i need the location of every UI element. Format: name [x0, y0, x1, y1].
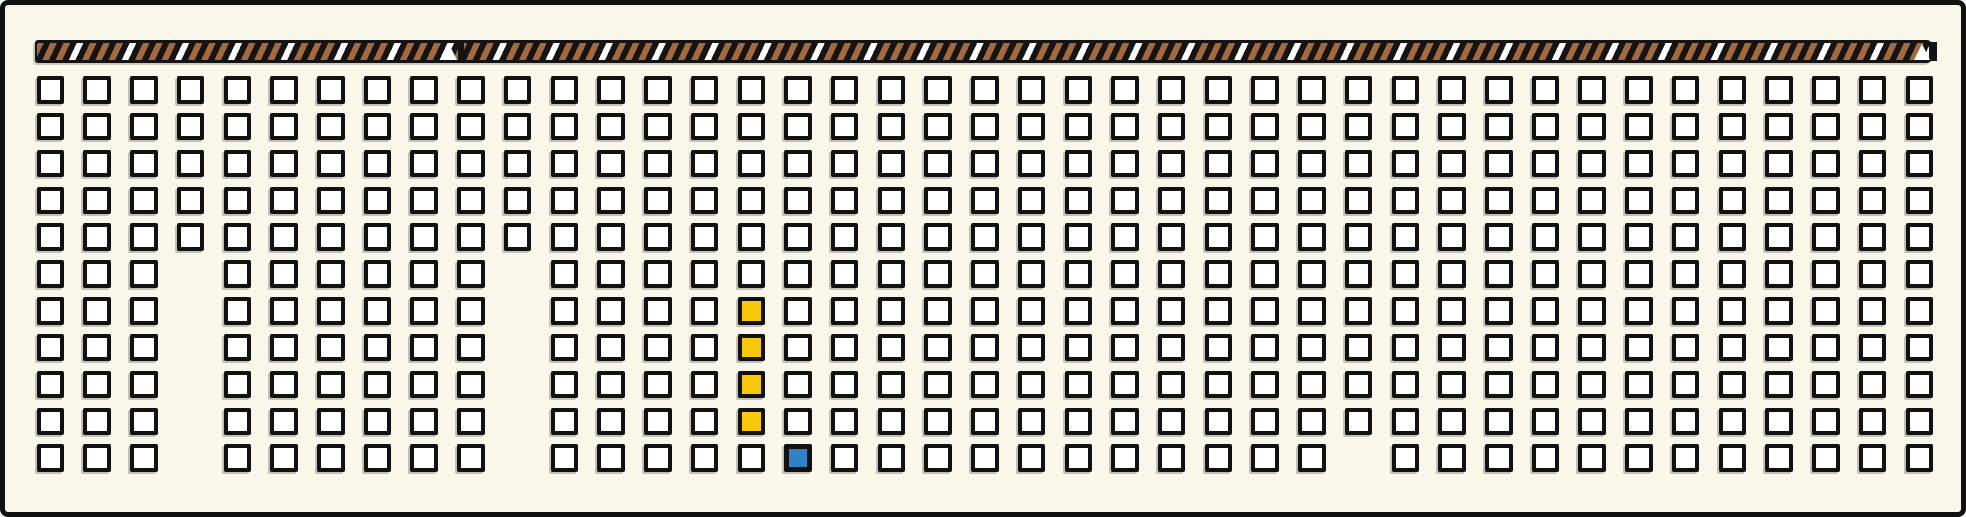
grid-cell[interactable]	[1345, 408, 1373, 436]
grid-cell[interactable]	[410, 223, 438, 251]
grid-cell[interactable]	[317, 408, 345, 436]
grid-cell[interactable]	[1485, 76, 1513, 104]
grid-cell[interactable]	[1719, 408, 1747, 436]
grid-cell[interactable]	[270, 408, 298, 436]
grid-cell-selected[interactable]	[784, 444, 812, 472]
grid-cell[interactable]	[1578, 260, 1606, 288]
grid-cell[interactable]	[1578, 113, 1606, 141]
grid-cell[interactable]	[1158, 187, 1186, 215]
grid-cell[interactable]	[878, 150, 906, 178]
grid-cell[interactable]	[1859, 223, 1887, 251]
grid-cell[interactable]	[1158, 297, 1186, 325]
grid-cell[interactable]	[551, 297, 579, 325]
grid-cell[interactable]	[644, 444, 672, 472]
grid-cell[interactable]	[924, 260, 952, 288]
grid-cell[interactable]	[644, 113, 672, 141]
grid-cell[interactable]	[130, 76, 158, 104]
grid-cell[interactable]	[1298, 371, 1326, 399]
grid-cell[interactable]	[1532, 408, 1560, 436]
grid-cell[interactable]	[878, 260, 906, 288]
grid-cell[interactable]	[1625, 150, 1653, 178]
grid-cell[interactable]	[831, 334, 859, 362]
grid-cell[interactable]	[1065, 297, 1093, 325]
grid-cell[interactable]	[457, 223, 485, 251]
grid-cell[interactable]	[551, 371, 579, 399]
grid-cell[interactable]	[177, 113, 205, 141]
grid-cell[interactable]	[924, 76, 952, 104]
grid-cell[interactable]	[1205, 76, 1233, 104]
grid-cell[interactable]	[83, 371, 111, 399]
grid-cell[interactable]	[1065, 223, 1093, 251]
grid-cell[interactable]	[37, 408, 65, 436]
grid-cell[interactable]	[177, 150, 205, 178]
grid-cell[interactable]	[1765, 371, 1793, 399]
grid-cell[interactable]	[364, 444, 392, 472]
grid-cell[interactable]	[924, 334, 952, 362]
grid-cell[interactable]	[1018, 297, 1046, 325]
grid-cell[interactable]	[738, 150, 766, 178]
grid-cell[interactable]	[1251, 150, 1279, 178]
grid-cell[interactable]	[1018, 408, 1046, 436]
grid-cell[interactable]	[1719, 371, 1747, 399]
grid-cell[interactable]	[1812, 113, 1840, 141]
grid-cell[interactable]	[1018, 260, 1046, 288]
grid-cell[interactable]	[1392, 187, 1420, 215]
grid-cell[interactable]	[1158, 334, 1186, 362]
grid-cell[interactable]	[784, 76, 812, 104]
grid-cell[interactable]	[971, 334, 999, 362]
grid-cell[interactable]	[457, 187, 485, 215]
grid-cell[interactable]	[1532, 297, 1560, 325]
grid-cell[interactable]	[457, 371, 485, 399]
grid-cell[interactable]	[83, 297, 111, 325]
grid-cell[interactable]	[1298, 260, 1326, 288]
grid-cell[interactable]	[1018, 150, 1046, 178]
grid-cell[interactable]	[1018, 334, 1046, 362]
grid-cell[interactable]	[37, 113, 65, 141]
grid-cell[interactable]	[317, 444, 345, 472]
grid-cell[interactable]	[1251, 76, 1279, 104]
grid-cell[interactable]	[971, 297, 999, 325]
grid-cell[interactable]	[1205, 113, 1233, 141]
grid-cell[interactable]	[1578, 150, 1606, 178]
grid-cell[interactable]	[924, 223, 952, 251]
grid-cell[interactable]	[130, 150, 158, 178]
grid-cell[interactable]	[1485, 223, 1513, 251]
grid-cell[interactable]	[971, 371, 999, 399]
grid-cell[interactable]	[410, 408, 438, 436]
grid-cell[interactable]	[1111, 150, 1139, 178]
grid-cell[interactable]	[691, 113, 719, 141]
grid-cell[interactable]	[1906, 76, 1934, 104]
grid-cell[interactable]	[1578, 334, 1606, 362]
grid-cell[interactable]	[317, 113, 345, 141]
grid-cell[interactable]	[597, 371, 625, 399]
grid-cell[interactable]	[1625, 334, 1653, 362]
grid-cell[interactable]	[1438, 371, 1466, 399]
grid-cell[interactable]	[270, 371, 298, 399]
grid-cell[interactable]	[1065, 76, 1093, 104]
grid-cell[interactable]	[317, 334, 345, 362]
grid-cell[interactable]	[1392, 113, 1420, 141]
grid-cell[interactable]	[691, 223, 719, 251]
grid-cell[interactable]	[1205, 408, 1233, 436]
grid-cell[interactable]	[738, 223, 766, 251]
grid-cell[interactable]	[691, 371, 719, 399]
grid-cell[interactable]	[878, 187, 906, 215]
grid-cell[interactable]	[364, 334, 392, 362]
grid-cell[interactable]	[878, 408, 906, 436]
grid-cell-highlighted[interactable]	[738, 297, 766, 325]
grid-cell[interactable]	[691, 408, 719, 436]
grid-cell[interactable]	[1485, 444, 1513, 472]
grid-cell[interactable]	[224, 260, 252, 288]
grid-cell[interactable]	[551, 76, 579, 104]
grid-cell[interactable]	[1345, 260, 1373, 288]
grid-cell[interactable]	[1906, 150, 1934, 178]
grid-cell[interactable]	[1438, 150, 1466, 178]
grid-cell[interactable]	[1859, 297, 1887, 325]
grid-cell[interactable]	[1906, 408, 1934, 436]
grid-cell[interactable]	[1812, 76, 1840, 104]
grid-cell[interactable]	[1812, 408, 1840, 436]
grid-cell[interactable]	[1345, 150, 1373, 178]
grid-cell[interactable]	[924, 444, 952, 472]
grid-cell[interactable]	[1298, 223, 1326, 251]
grid-cell[interactable]	[551, 223, 579, 251]
grid-cell[interactable]	[597, 260, 625, 288]
grid-cell[interactable]	[1065, 260, 1093, 288]
grid-cell[interactable]	[1392, 223, 1420, 251]
grid-cell[interactable]	[457, 260, 485, 288]
grid-cell[interactable]	[597, 223, 625, 251]
grid-cell[interactable]	[644, 187, 672, 215]
grid-cell[interactable]	[1111, 260, 1139, 288]
grid-cell[interactable]	[1859, 150, 1887, 178]
grid-cell[interactable]	[1018, 444, 1046, 472]
grid-cell[interactable]	[878, 444, 906, 472]
grid-cell[interactable]	[130, 223, 158, 251]
grid-cell[interactable]	[1532, 444, 1560, 472]
grid-cell[interactable]	[1345, 371, 1373, 399]
grid-cell[interactable]	[831, 371, 859, 399]
grid-cell[interactable]	[1298, 113, 1326, 141]
grid-cell[interactable]	[1859, 334, 1887, 362]
grid-cell[interactable]	[1298, 408, 1326, 436]
grid-cell[interactable]	[83, 187, 111, 215]
grid-cell[interactable]	[317, 223, 345, 251]
grid-cell[interactable]	[1765, 187, 1793, 215]
grid-cell[interactable]	[644, 260, 672, 288]
grid-cell[interactable]	[1251, 371, 1279, 399]
grid-cell[interactable]	[224, 408, 252, 436]
grid-cell[interactable]	[831, 297, 859, 325]
grid-cell[interactable]	[597, 297, 625, 325]
grid-cell[interactable]	[1065, 408, 1093, 436]
grid-cell[interactable]	[1485, 408, 1513, 436]
grid-cell[interactable]	[224, 223, 252, 251]
grid-cell[interactable]	[1625, 223, 1653, 251]
grid-cell[interactable]	[1672, 334, 1700, 362]
grid-cell[interactable]	[37, 76, 65, 104]
grid-cell[interactable]	[644, 150, 672, 178]
grid-cell[interactable]	[1719, 297, 1747, 325]
grid-cell[interactable]	[644, 223, 672, 251]
grid-cell[interactable]	[597, 150, 625, 178]
grid-cell[interactable]	[1906, 223, 1934, 251]
grid-cell[interactable]	[1111, 297, 1139, 325]
grid-cell[interactable]	[1532, 150, 1560, 178]
grid-cell[interactable]	[1625, 371, 1653, 399]
grid-cell[interactable]	[1625, 408, 1653, 436]
grid-cell[interactable]	[1906, 260, 1934, 288]
grid-cell[interactable]	[551, 187, 579, 215]
grid-cell[interactable]	[1485, 334, 1513, 362]
grid-cell[interactable]	[504, 76, 532, 104]
grid-cell[interactable]	[1625, 444, 1653, 472]
grid-cell[interactable]	[551, 113, 579, 141]
grid-cell[interactable]	[1578, 187, 1606, 215]
grid-cell[interactable]	[1018, 223, 1046, 251]
grid-cell[interactable]	[1392, 260, 1420, 288]
grid-cell[interactable]	[457, 76, 485, 104]
grid-cell[interactable]	[1906, 187, 1934, 215]
grid-cell[interactable]	[1345, 187, 1373, 215]
grid-cell[interactable]	[37, 444, 65, 472]
grid-cell[interactable]	[1438, 113, 1466, 141]
grid-cell[interactable]	[1812, 187, 1840, 215]
grid-cell[interactable]	[1672, 260, 1700, 288]
grid-cell[interactable]	[1765, 408, 1793, 436]
grid-cell[interactable]	[1345, 297, 1373, 325]
grid-cell[interactable]	[364, 408, 392, 436]
grid-cell[interactable]	[1765, 150, 1793, 178]
grid-cell[interactable]	[1065, 334, 1093, 362]
grid-cell[interactable]	[1438, 223, 1466, 251]
grid-cell[interactable]	[1906, 297, 1934, 325]
grid-cell[interactable]	[831, 150, 859, 178]
grid-cell[interactable]	[457, 444, 485, 472]
grid-cell[interactable]	[1065, 444, 1093, 472]
grid-cell[interactable]	[691, 297, 719, 325]
grid-cell[interactable]	[738, 76, 766, 104]
grid-cell[interactable]	[784, 223, 812, 251]
grid-cell[interactable]	[597, 187, 625, 215]
grid-cell[interactable]	[1251, 187, 1279, 215]
grid-cell-highlighted[interactable]	[738, 334, 766, 362]
grid-cell[interactable]	[738, 444, 766, 472]
grid-cell[interactable]	[1578, 444, 1606, 472]
grid-cell[interactable]	[317, 150, 345, 178]
grid-cell[interactable]	[177, 76, 205, 104]
grid-cell[interactable]	[878, 76, 906, 104]
grid-cell[interactable]	[831, 187, 859, 215]
grid-cell[interactable]	[410, 444, 438, 472]
grid-cell[interactable]	[130, 444, 158, 472]
grid-cell[interactable]	[1625, 260, 1653, 288]
grid-cell[interactable]	[364, 150, 392, 178]
grid-cell[interactable]	[971, 408, 999, 436]
grid-cell[interactable]	[1392, 297, 1420, 325]
grid-cell[interactable]	[878, 371, 906, 399]
grid-cell[interactable]	[1765, 76, 1793, 104]
grid-cell[interactable]	[1532, 223, 1560, 251]
grid-cell[interactable]	[177, 187, 205, 215]
grid-cell[interactable]	[1065, 187, 1093, 215]
grid-cell[interactable]	[410, 76, 438, 104]
grid-cell[interactable]	[1111, 113, 1139, 141]
grid-cell[interactable]	[831, 408, 859, 436]
grid-cell[interactable]	[130, 187, 158, 215]
grid-cell[interactable]	[37, 371, 65, 399]
grid-cell[interactable]	[1438, 444, 1466, 472]
grid-cell[interactable]	[1719, 150, 1747, 178]
grid-cell[interactable]	[784, 260, 812, 288]
grid-cell[interactable]	[831, 113, 859, 141]
grid-cell[interactable]	[270, 187, 298, 215]
grid-cell[interactable]	[1018, 187, 1046, 215]
grid-cell[interactable]	[224, 76, 252, 104]
grid-cell[interactable]	[1392, 76, 1420, 104]
grid-cell[interactable]	[644, 371, 672, 399]
grid-cell[interactable]	[1158, 223, 1186, 251]
grid-cell[interactable]	[1625, 297, 1653, 325]
grid-cell[interactable]	[1672, 113, 1700, 141]
grid-cell[interactable]	[410, 113, 438, 141]
grid-cell[interactable]	[1672, 371, 1700, 399]
grid-cell[interactable]	[410, 371, 438, 399]
grid-cell[interactable]	[1812, 223, 1840, 251]
grid-cell[interactable]	[37, 334, 65, 362]
grid-cell[interactable]	[1485, 297, 1513, 325]
grid-cell[interactable]	[317, 371, 345, 399]
grid-cell[interactable]	[691, 334, 719, 362]
grid-cell[interactable]	[364, 260, 392, 288]
grid-cell[interactable]	[270, 444, 298, 472]
grid-cell[interactable]	[83, 76, 111, 104]
grid-cell[interactable]	[644, 76, 672, 104]
grid-cell[interactable]	[1345, 76, 1373, 104]
grid-cell[interactable]	[1251, 334, 1279, 362]
grid-cell[interactable]	[270, 223, 298, 251]
grid-cell[interactable]	[410, 334, 438, 362]
grid-cell[interactable]	[924, 150, 952, 178]
grid-cell[interactable]	[504, 113, 532, 141]
grid-cell[interactable]	[364, 223, 392, 251]
grid-cell[interactable]	[1392, 371, 1420, 399]
grid-cell[interactable]	[1532, 260, 1560, 288]
grid-cell[interactable]	[1485, 113, 1513, 141]
grid-cell[interactable]	[1438, 187, 1466, 215]
grid-cell[interactable]	[1251, 444, 1279, 472]
grid-cell[interactable]	[1205, 150, 1233, 178]
grid-cell[interactable]	[83, 260, 111, 288]
grid-cell[interactable]	[1485, 187, 1513, 215]
grid-cell[interactable]	[691, 444, 719, 472]
grid-cell[interactable]	[551, 408, 579, 436]
grid-cell[interactable]	[1392, 408, 1420, 436]
grid-cell[interactable]	[364, 371, 392, 399]
grid-cell[interactable]	[644, 408, 672, 436]
grid-cell[interactable]	[1065, 371, 1093, 399]
grid-cell[interactable]	[1485, 260, 1513, 288]
grid-cell[interactable]	[1859, 76, 1887, 104]
grid-cell[interactable]	[1251, 113, 1279, 141]
grid-cell[interactable]	[83, 150, 111, 178]
grid-cell[interactable]	[1205, 223, 1233, 251]
grid-cell[interactable]	[37, 150, 65, 178]
grid-cell[interactable]	[457, 408, 485, 436]
grid-cell[interactable]	[317, 260, 345, 288]
grid-cell[interactable]	[364, 187, 392, 215]
grid-cell[interactable]	[1018, 76, 1046, 104]
grid-cell[interactable]	[270, 334, 298, 362]
grid-cell[interactable]	[784, 334, 812, 362]
grid-cell[interactable]	[1251, 408, 1279, 436]
grid-cell[interactable]	[1111, 223, 1139, 251]
grid-cell[interactable]	[504, 187, 532, 215]
grid-cell[interactable]	[224, 334, 252, 362]
grid-cell[interactable]	[1578, 76, 1606, 104]
grid-cell[interactable]	[1111, 408, 1139, 436]
grid-cell[interactable]	[1111, 187, 1139, 215]
grid-cell[interactable]	[971, 260, 999, 288]
grid-cell[interactable]	[1438, 76, 1466, 104]
grid-cell[interactable]	[784, 371, 812, 399]
grid-cell[interactable]	[1859, 444, 1887, 472]
grid-cell[interactable]	[831, 76, 859, 104]
grid-cell[interactable]	[457, 297, 485, 325]
grid-cell[interactable]	[1158, 150, 1186, 178]
grid-cell[interactable]	[83, 334, 111, 362]
grid-cell[interactable]	[1485, 150, 1513, 178]
grid-cell[interactable]	[1532, 371, 1560, 399]
grid-cell[interactable]	[1625, 187, 1653, 215]
grid-cell[interactable]	[410, 187, 438, 215]
grid-cell[interactable]	[1859, 371, 1887, 399]
grid-cell[interactable]	[971, 187, 999, 215]
grid-cell[interactable]	[1111, 444, 1139, 472]
grid-cell[interactable]	[270, 260, 298, 288]
grid-cell[interactable]	[1205, 444, 1233, 472]
grid-cell[interactable]	[1392, 444, 1420, 472]
grid-cell[interactable]	[1532, 76, 1560, 104]
grid-cell[interactable]	[1158, 260, 1186, 288]
grid-cell[interactable]	[1345, 113, 1373, 141]
grid-cell[interactable]	[1345, 334, 1373, 362]
grid-cell[interactable]	[224, 297, 252, 325]
grid-cell[interactable]	[1625, 113, 1653, 141]
grid-cell[interactable]	[224, 150, 252, 178]
grid-cell[interactable]	[597, 408, 625, 436]
grid-cell[interactable]	[1111, 76, 1139, 104]
grid-cell[interactable]	[1765, 113, 1793, 141]
grid-cell[interactable]	[224, 444, 252, 472]
grid-cell[interactable]	[924, 371, 952, 399]
grid-cell[interactable]	[1578, 408, 1606, 436]
grid-cell[interactable]	[177, 223, 205, 251]
grid-cell[interactable]	[1298, 150, 1326, 178]
grid-cell[interactable]	[1812, 371, 1840, 399]
grid-cell[interactable]	[644, 334, 672, 362]
grid-cell[interactable]	[551, 150, 579, 178]
grid-cell[interactable]	[1205, 187, 1233, 215]
grid-cell[interactable]	[878, 334, 906, 362]
grid-cell[interactable]	[1906, 444, 1934, 472]
grid-cell[interactable]	[691, 150, 719, 178]
grid-cell[interactable]	[1298, 187, 1326, 215]
grid-cell[interactable]	[130, 408, 158, 436]
